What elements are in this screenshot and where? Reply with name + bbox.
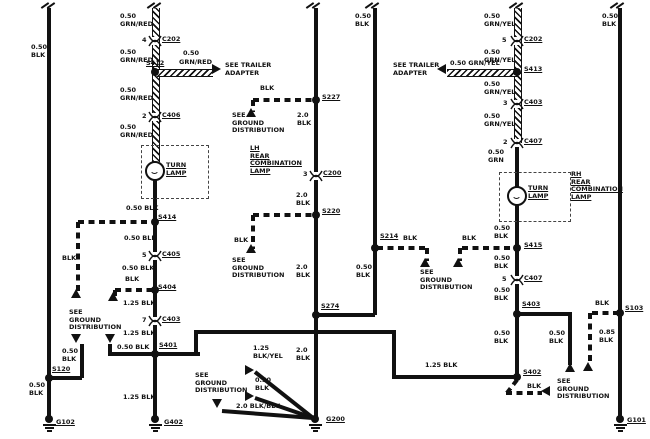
label-s403-branch-wire: 0.50 BLK — [549, 330, 565, 345]
connector-c202-lh — [147, 35, 163, 47]
label-l1-top: 0.50 BLK — [31, 44, 47, 59]
arrow-gd-s414 — [71, 289, 81, 298]
label-splice-s415[interactable]: S415 — [524, 242, 542, 250]
label-ground-g102[interactable]: G102 — [56, 419, 75, 427]
label-l5-seg8: 0.50 BLK — [494, 287, 510, 302]
label-lh-rear-combination-lamp[interactable]: LH REAR COMBINATION LAMP — [250, 145, 302, 175]
ground-g402-bar0 — [149, 424, 162, 426]
wire-s413-trailer — [447, 69, 517, 77]
wire-rh-blk-run — [515, 205, 519, 379]
label-l6-seg2: 0.85 BLK — [599, 329, 615, 344]
label-ground-g200[interactable]: G200 — [326, 416, 345, 424]
label-s413-wire: 0.50 GRN/YEL — [450, 60, 500, 68]
label-l1-seg2: 0.50 BLK — [29, 382, 45, 397]
label-splice-s274[interactable]: S274 — [321, 303, 339, 311]
label-l2-seg7: 0.50 BLK — [122, 265, 154, 273]
ground-g200-bar2 — [313, 430, 318, 432]
connector-c403-rh — [509, 98, 525, 110]
arrow-gd-s103 — [583, 362, 593, 371]
wire-s412-trailer — [157, 69, 213, 77]
label-splice-s214[interactable]: S214 — [380, 233, 398, 241]
connector-c403-lh — [147, 315, 163, 327]
label-connector-c407b[interactable]: C407 — [524, 275, 542, 283]
label-g200-feed2: 0.50 BLK — [255, 377, 271, 392]
label-c406-pin: 2 — [142, 113, 147, 121]
ground-g200-bar0 — [309, 424, 322, 426]
ground-g102-bar1 — [45, 427, 54, 429]
label-c202-lh-pin: 4 — [142, 37, 147, 45]
splice-s401 — [151, 350, 159, 358]
label-connector-c202-rh[interactable]: C202 — [524, 36, 542, 44]
label-lh-turn-lamp[interactable]: TURN LAMP — [166, 162, 186, 177]
wire-s403-branch-v — [568, 312, 572, 365]
splice-s412 — [151, 68, 159, 76]
label-splice-s227[interactable]: S227 — [322, 94, 340, 102]
label-l5-seg3: 0.50 GRN/YEL — [484, 81, 515, 96]
wire-s415-drop-h — [462, 246, 515, 250]
label-s412-wire-color: GRN/RED — [179, 59, 212, 67]
label-see-ground-distribution-bottom: SEE GROUND DISTRIBUTION — [195, 372, 247, 395]
wire-left-ground-line — [47, 8, 51, 419]
arrow-gd-g200-feed3 — [212, 399, 222, 408]
label-l2-seg3: 0.50 GRN/RED — [120, 87, 153, 102]
wire-s401-s402-h1 — [194, 330, 396, 334]
arrow-trailer-lh — [212, 64, 221, 74]
ground-g102-bar2 — [47, 430, 52, 432]
ground-g101-bar0 — [614, 424, 627, 426]
label-l5-seg4: 0.50 GRN/YEL — [484, 113, 515, 128]
label-splice-s220[interactable]: S220 — [322, 208, 340, 216]
wire-s401-s402-v2 — [392, 332, 396, 377]
label-l2-seg8: 1.25 BLK — [123, 300, 155, 308]
splice-s227 — [312, 96, 320, 104]
label-s220-drop-wire: BLK — [234, 237, 248, 245]
label-see-ground-distribution-left: SEE GROUND DISTRIBUTION — [69, 309, 121, 332]
ground-g102 — [45, 415, 53, 423]
label-l5-top: 0.50 GRN/YEL — [484, 13, 515, 28]
splice-s402 — [513, 373, 521, 381]
label-splice-s414[interactable]: S414 — [158, 214, 176, 222]
label-s415-drop-wire: BLK — [462, 235, 476, 243]
label-s414-drop-wire: BLK — [62, 255, 76, 263]
label-see-ground-distribution-bottom-right: SEE GROUND DISTRIBUTION — [557, 378, 609, 401]
connector-c407a — [509, 137, 525, 149]
ground-g402 — [151, 415, 159, 423]
label-see-trailer-adapter-lh: SEE TRAILER ADAPTER — [225, 62, 271, 77]
label-connector-c403-rh[interactable]: C403 — [524, 99, 542, 107]
wire-s401-s402-v1 — [194, 332, 198, 356]
connector-c202-rh — [509, 35, 525, 47]
label-see-ground-distribution-right-mid: SEE GROUND DISTRIBUTION — [420, 269, 472, 292]
label-g200-feed3: 2.0 BLK/BLU — [236, 403, 280, 411]
label-connector-c403-lh[interactable]: C403 — [162, 316, 180, 324]
wire-center2-to-s274 — [316, 313, 375, 317]
wire-s214-drop-h — [377, 246, 427, 250]
arrow-gd-s415 — [453, 258, 463, 267]
wire-s404-drop-h — [115, 288, 155, 292]
wiring-diagram: 0.50 BLK0.50 GRN/RED4C2020.50 GRN/REDS41… — [0, 0, 650, 439]
ground-g101 — [616, 415, 624, 423]
splice-s220 — [312, 211, 320, 219]
wire-s401-s402-h2 — [392, 375, 519, 379]
label-rh-turn-lamp[interactable]: TURN LAMP — [528, 185, 548, 200]
label-c403-rh-pin: 3 — [503, 100, 508, 108]
wire-s414-drop-v — [76, 222, 80, 293]
label-l2-seg9: 1.25 BLK — [123, 330, 155, 338]
wire-s103-drop-v — [588, 313, 592, 364]
splice-s103 — [616, 309, 624, 317]
arrow-gd-s404 — [108, 292, 118, 301]
label-see-trailer-adapter-rh: SEE TRAILER ADAPTER — [393, 62, 439, 77]
arrow-gd-s401 — [105, 334, 115, 343]
wire-s220-drop-h — [253, 213, 316, 217]
label-l5-seg6: 0.50 BLK — [494, 225, 510, 240]
label-l3-seg4: 2.0 BLK — [296, 264, 310, 279]
label-ground-g101[interactable]: G101 — [627, 417, 646, 425]
label-connector-c407a[interactable]: C407 — [524, 138, 542, 146]
label-c202-rh-pin: 5 — [502, 37, 507, 45]
ground-g102-bar0 — [43, 424, 56, 426]
wire-s120-feed-v — [80, 344, 84, 378]
label-s412-wire-size: 0.50 — [183, 50, 199, 58]
wire-s414-drop-h — [78, 220, 155, 224]
label-see-ground-distribution-mid-top: SEE GROUND DISTRIBUTION — [232, 112, 284, 135]
label-splice-s412[interactable]: S412 — [146, 60, 164, 68]
wire-right-ground-line — [618, 8, 622, 419]
label-s120-feed-wire: 0.50 BLK — [62, 348, 78, 363]
connector-c405 — [147, 250, 163, 262]
wire-s402-drop-h — [506, 391, 542, 395]
label-connector-c202-lh[interactable]: C202 — [162, 36, 180, 44]
label-s404-wire: BLK — [125, 276, 139, 284]
connector-c200 — [308, 170, 324, 182]
label-c200-pin: 3 — [303, 171, 308, 179]
label-splice-s402[interactable]: S402 — [523, 369, 541, 377]
arrow-gd-s120 — [71, 334, 81, 343]
ground-g101-bar2 — [618, 430, 623, 432]
label-c403-lh-pin: 7 — [142, 317, 147, 325]
wire-lh-grn-red-run — [152, 8, 160, 162]
label-splice-s120[interactable]: S120 — [52, 366, 70, 374]
label-g200-feed1: 1.25 BLK/YEL — [253, 345, 283, 360]
label-s214-drop-wire: BLK — [403, 235, 417, 243]
ground-g402-bar1 — [151, 427, 160, 429]
label-s401-s402-wire: 1.25 BLK — [425, 362, 457, 370]
label-connector-c405[interactable]: C405 — [162, 251, 180, 259]
label-c407a-pin: 2 — [503, 139, 508, 147]
label-s103-drop-wire: BLK — [595, 300, 609, 308]
label-l3-seg5: 2.0 BLK — [296, 347, 310, 362]
rh-turn-lamp-filament-icon — [512, 190, 521, 199]
wire-s403-branch-h — [517, 312, 570, 316]
ground-g200-bar1 — [311, 427, 320, 429]
arrow-gd-s403 — [565, 363, 575, 372]
wire-center2-blk-run — [373, 8, 377, 315]
arrow-gd-s220 — [246, 244, 256, 253]
splice-s413 — [513, 68, 521, 76]
label-s227-drop-wire: BLK — [260, 85, 274, 93]
splice-s403 — [513, 310, 521, 318]
ground-g200 — [311, 415, 319, 423]
arrow-gd-s214 — [420, 258, 430, 267]
label-l4-top: 0.50 BLK — [355, 13, 371, 28]
ground-g402-bar2 — [153, 430, 158, 432]
label-s401-feed-wire: 0.50 BLK — [117, 344, 149, 352]
splice-s415 — [513, 244, 521, 252]
label-ground-g402[interactable]: G402 — [164, 419, 183, 427]
label-rh-rear-combination-lamp[interactable]: RH REAR COMBINATION LAMP — [571, 171, 623, 201]
ground-g101-bar1 — [616, 427, 625, 429]
label-see-ground-distribution-mid: SEE GROUND DISTRIBUTION — [232, 257, 284, 280]
arrow-gd-s402 — [541, 386, 550, 396]
label-splice-s403[interactable]: S403 — [522, 301, 540, 309]
connector-c406 — [147, 111, 163, 123]
label-l2-seg10: 1.25 BLK — [123, 394, 155, 402]
label-l6-top: 0.50 BLK — [602, 13, 618, 28]
wire-s227-drop-h — [253, 98, 316, 102]
label-connector-c406[interactable]: C406 — [162, 112, 180, 120]
splice-s274 — [312, 311, 320, 319]
label-l2-top: 0.50 GRN/RED — [120, 13, 153, 28]
label-l4-seg2: 0.50 BLK — [356, 264, 372, 279]
label-splice-s401[interactable]: S401 — [159, 342, 177, 350]
label-connector-c200[interactable]: C200 — [323, 170, 341, 178]
label-splice-s413[interactable]: S413 — [524, 66, 542, 74]
label-l2-seg6: 0.50 BLK — [124, 235, 156, 243]
connector-c407b — [509, 274, 525, 286]
label-c407b-pin: 5 — [502, 276, 507, 284]
label-l2-seg5: 0.50 BLK — [126, 205, 158, 213]
label-l3-seg3: 2.0 BLK — [296, 192, 310, 207]
label-s402-drop-wire: BLK — [527, 383, 541, 391]
label-c405-pin: 5 — [142, 252, 147, 260]
label-l2-seg4: 0.50 GRN/RED — [120, 124, 153, 139]
label-splice-s103[interactable]: S103 — [625, 305, 643, 313]
label-l3-seg2: 2.0 BLK — [297, 112, 311, 127]
splice-s120 — [45, 374, 53, 382]
lh-turn-lamp-filament-icon — [150, 165, 159, 174]
label-l5-seg9: 0.50 BLK — [494, 330, 510, 345]
label-splice-s404[interactable]: S404 — [158, 284, 176, 292]
splice-s214 — [371, 244, 379, 252]
wire-s120-feed-h — [49, 376, 82, 380]
label-l5-seg7: 0.50 BLK — [494, 255, 510, 270]
label-l5-seg5: 0.50 GRN — [488, 149, 504, 164]
